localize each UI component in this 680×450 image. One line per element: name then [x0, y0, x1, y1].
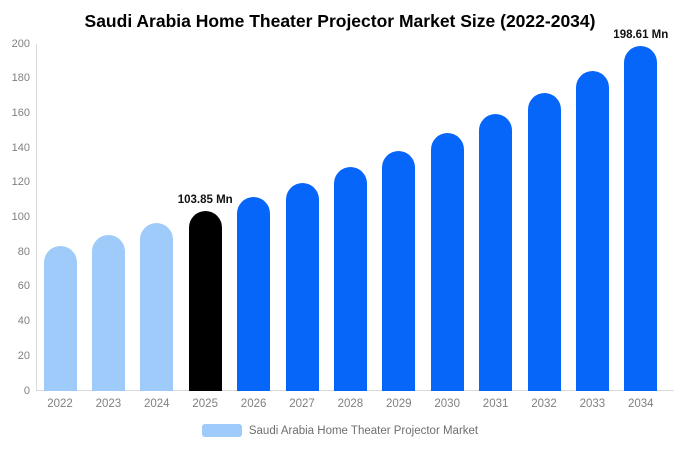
x-tick-label-2034: 2034: [628, 398, 654, 410]
x-tick-label-2030: 2030: [434, 398, 460, 410]
x-tick-label-2027: 2027: [289, 398, 315, 410]
bar-2022: [44, 246, 77, 391]
chart-container: Saudi Arabia Home Theater Projector Mark…: [0, 0, 680, 450]
y-tick-label: 100: [0, 211, 30, 224]
x-tick-label-2024: 2024: [144, 398, 170, 410]
bar-2029: [382, 151, 415, 391]
bar-2023: [92, 235, 125, 391]
x-tick-label-2026: 2026: [241, 398, 267, 410]
bar-2031: [479, 114, 512, 391]
x-tick-label-2023: 2023: [96, 398, 122, 410]
bar-annotation-2025: 103.85 Mn: [178, 194, 233, 206]
bar-2026: [237, 197, 270, 391]
bar-2028: [334, 167, 367, 391]
bar-annotation-2034: 198.61 Mn: [613, 29, 668, 41]
bar-2032: [528, 93, 561, 391]
bar-2025: [189, 211, 222, 391]
y-tick-label: 120: [0, 176, 30, 189]
y-tick-label: 180: [0, 72, 30, 85]
y-tick-label: 140: [0, 142, 30, 155]
bar-2030: [431, 133, 464, 391]
y-tick-label: 40: [0, 315, 30, 328]
bar-2034: [624, 46, 657, 391]
x-tick-label-2028: 2028: [338, 398, 364, 410]
legend-label: Saudi Arabia Home Theater Projector Mark…: [249, 425, 478, 437]
bar-2027: [286, 183, 319, 391]
x-axis: 2022202320242025202620272028202920302031…: [37, 398, 674, 414]
x-tick-label-2029: 2029: [386, 398, 412, 410]
bar-series: 103.85 Mn198.61 Mn: [37, 44, 674, 391]
y-tick-label: 200: [0, 38, 30, 51]
bar-2024: [140, 223, 173, 391]
x-tick-label-2033: 2033: [580, 398, 606, 410]
y-tick-label: 60: [0, 280, 30, 293]
legend-item[interactable]: Saudi Arabia Home Theater Projector Mark…: [202, 424, 478, 437]
legend-swatch-icon: [202, 424, 242, 437]
x-tick-label-2031: 2031: [483, 398, 509, 410]
x-tick-label-2022: 2022: [47, 398, 73, 410]
legend: Saudi Arabia Home Theater Projector Mark…: [0, 424, 680, 437]
y-tick-label: 80: [0, 246, 30, 259]
bar-2033: [576, 71, 609, 391]
y-tick-label: 0: [0, 385, 30, 398]
y-axis: 020406080100120140160180200: [0, 44, 30, 391]
y-tick-label: 20: [0, 350, 30, 363]
x-tick-label-2032: 2032: [531, 398, 557, 410]
y-tick-label: 160: [0, 107, 30, 120]
x-tick-label-2025: 2025: [192, 398, 218, 410]
chart-title: Saudi Arabia Home Theater Projector Mark…: [0, 11, 680, 32]
